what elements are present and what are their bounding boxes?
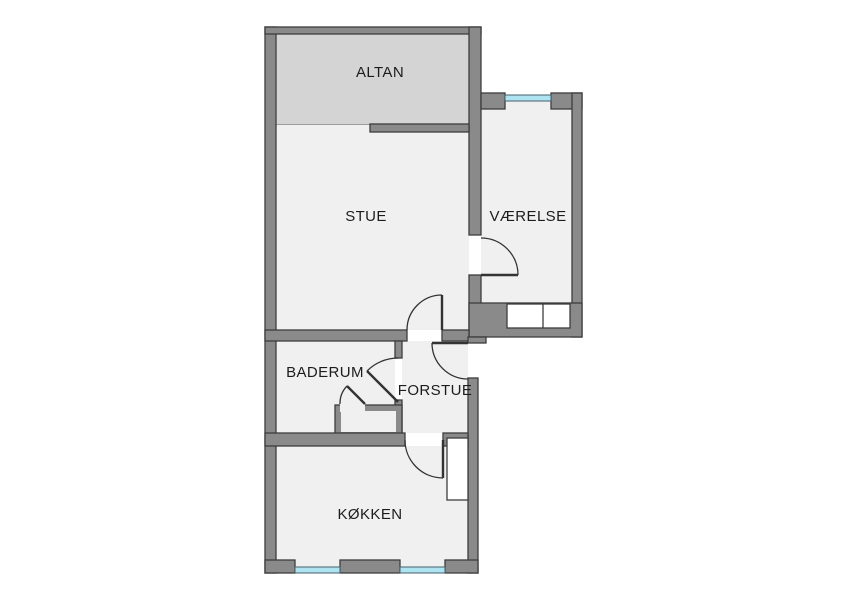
cabinet-koekken (447, 438, 468, 500)
window-recess-koekken-left (295, 560, 340, 567)
room-koekken-area (276, 446, 468, 560)
wall-outer-bottom-right (445, 560, 478, 573)
label-altan: ALTAN (356, 64, 404, 81)
wall-stue-bottom-left (265, 330, 407, 341)
wall-outer-left (265, 27, 276, 573)
wall-stue-vaerelse-upper (469, 27, 481, 235)
closet-interior (341, 411, 396, 432)
window-koekken-left (295, 567, 340, 573)
window-vaerelse (505, 95, 551, 101)
wardrobe-vaerelse (507, 304, 570, 328)
wall-stue-bottom-right (442, 330, 469, 341)
wall-koekken-top-left (265, 433, 405, 446)
label-stue: STUE (345, 208, 387, 225)
label-forstue: FORSTUE (398, 382, 472, 399)
wall-outer-bottom-left (265, 560, 295, 573)
floor-plan-page: ALTAN STUE VÆRELSE BADERUM FORSTUE KØKKE… (0, 0, 850, 600)
floor-plan: ALTAN STUE VÆRELSE BADERUM FORSTUE KØKKE… (0, 0, 850, 600)
room-vaerelse-area (481, 105, 572, 303)
label-koekken: KØKKEN (338, 506, 403, 523)
wall-outer-right-lower (468, 378, 478, 573)
closet-door-opening (340, 403, 365, 412)
label-vaerelse: VÆRELSE (490, 208, 567, 225)
wall-outer-top (265, 27, 481, 34)
wall-entry-lip (468, 337, 486, 343)
wall-outer-right-vaerelse (572, 93, 582, 337)
wall-outer-bottom-pier (340, 560, 400, 573)
window-recess-vaerelse (505, 101, 551, 107)
room-stue-area (276, 125, 469, 330)
wall-vaerelse-top-left-stub (481, 93, 505, 109)
wall-baderum-forstue-stub (395, 341, 402, 358)
label-baderum: BADERUM (286, 364, 364, 381)
wall-altan-stue (370, 124, 469, 132)
window-koekken-right (400, 567, 445, 573)
window-recess-koekken-right (400, 560, 445, 567)
